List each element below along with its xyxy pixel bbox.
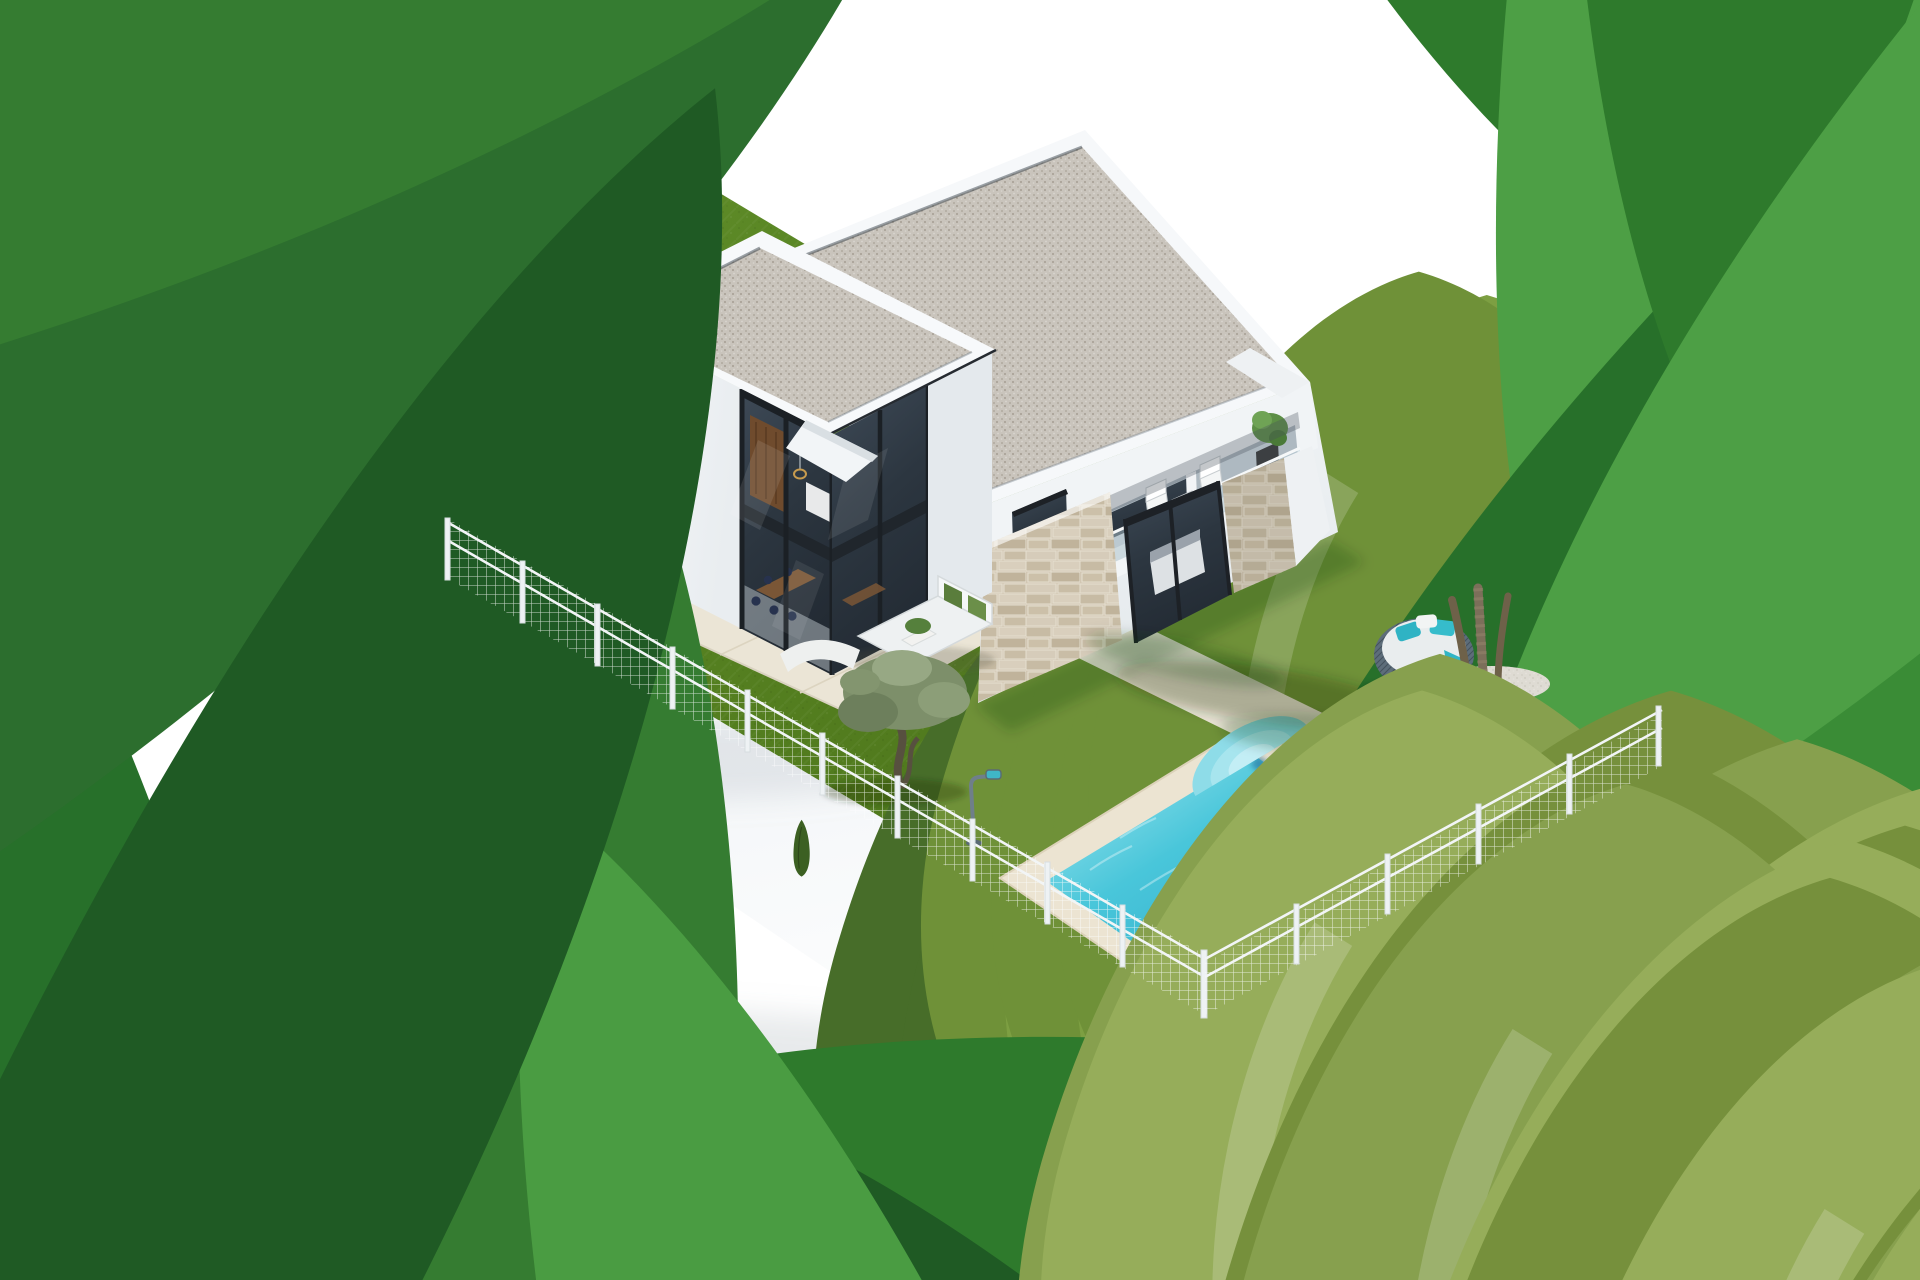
render-canvas xyxy=(0,0,1920,1280)
villa-render xyxy=(0,0,1920,1280)
white-pillow xyxy=(1416,614,1438,629)
lamp-head xyxy=(986,770,1001,779)
